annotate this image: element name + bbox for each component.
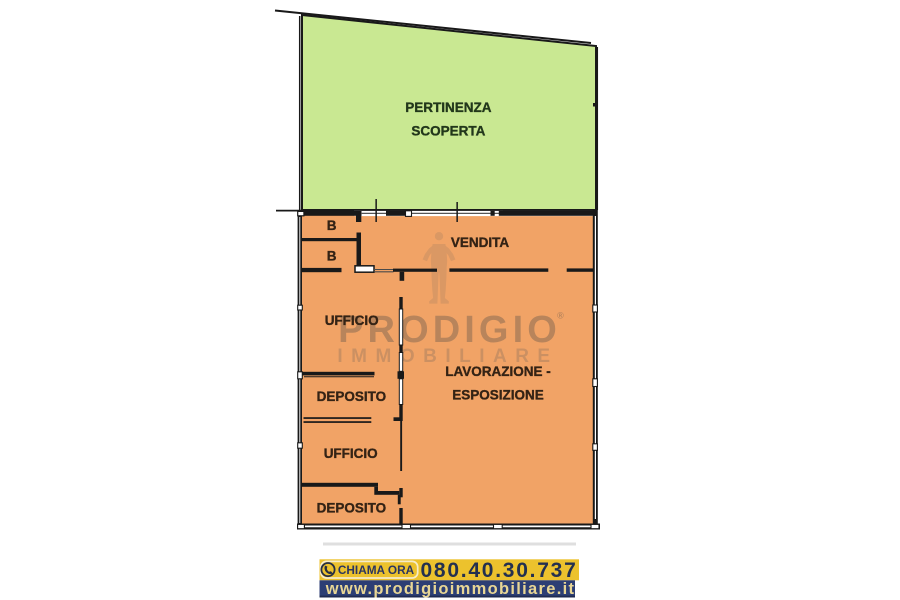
- svg-text:UFFICIO: UFFICIO: [324, 446, 378, 461]
- svg-text:®: ®: [557, 311, 564, 321]
- svg-text:UFFICIO: UFFICIO: [325, 313, 379, 328]
- svg-text:VENDITA: VENDITA: [451, 235, 510, 250]
- svg-text:LAVORAZIONE -: LAVORAZIONE -: [445, 364, 551, 379]
- svg-text:ESPOSIZIONE: ESPOSIZIONE: [452, 388, 544, 403]
- svg-text:B: B: [327, 249, 337, 264]
- svg-text:PERTINENZA: PERTINENZA: [405, 100, 492, 115]
- svg-text:080.40.30.737: 080.40.30.737: [420, 559, 577, 582]
- svg-text:CHIAMA ORA: CHIAMA ORA: [338, 563, 415, 577]
- svg-text:DEPOSITO: DEPOSITO: [317, 389, 387, 404]
- svg-text:DEPOSITO: DEPOSITO: [317, 501, 387, 516]
- svg-text:SCOPERTA: SCOPERTA: [411, 124, 485, 139]
- svg-text:www.prodigioimmobiliare.it: www.prodigioimmobiliare.it: [325, 580, 576, 598]
- svg-text:B: B: [327, 218, 337, 233]
